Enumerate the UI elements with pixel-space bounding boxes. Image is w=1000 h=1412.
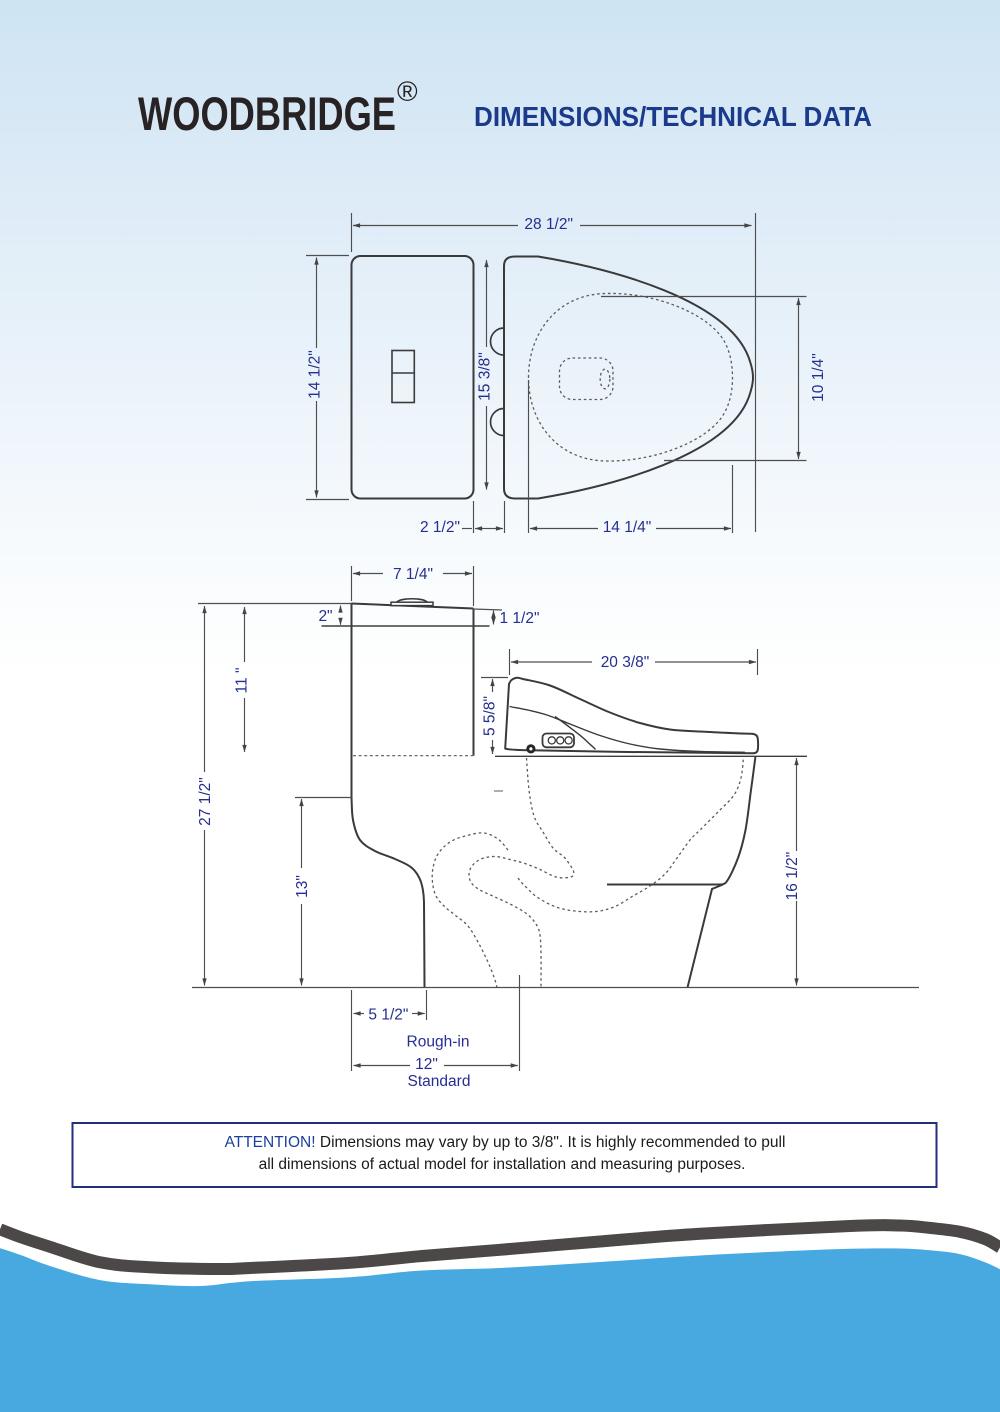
svg-text:15 3/8": 15 3/8" — [477, 352, 494, 401]
svg-text:28 1/2": 28 1/2" — [524, 216, 573, 233]
svg-text:2 1/2": 2 1/2" — [420, 519, 460, 536]
svg-text:13": 13" — [294, 875, 311, 898]
svg-text:27 1/2": 27 1/2" — [197, 777, 214, 826]
svg-text:5 1/2": 5 1/2" — [368, 1007, 408, 1024]
svg-text:14 1/2": 14 1/2" — [307, 350, 324, 399]
svg-text:WOODBRIDGE: WOODBRIDGE — [138, 87, 396, 140]
svg-text:Rough-in: Rough-in — [407, 1034, 470, 1051]
svg-text:16 1/2": 16 1/2" — [784, 852, 801, 901]
svg-text:12": 12" — [415, 1056, 438, 1073]
svg-text:7 1/4": 7 1/4" — [393, 566, 433, 583]
svg-text:all dimensions of actual model: all dimensions of actual model for insta… — [259, 1156, 746, 1173]
svg-text:5 5/8": 5 5/8" — [482, 696, 499, 736]
svg-text:11 ": 11 " — [234, 668, 251, 694]
svg-text:DIMENSIONS/TECHNICAL DATA: DIMENSIONS/TECHNICAL DATA — [474, 101, 872, 132]
svg-text:®: ® — [397, 76, 418, 107]
svg-text:1 1/2": 1 1/2" — [500, 610, 540, 627]
svg-text:Standard: Standard — [408, 1073, 471, 1090]
svg-text:ATTENTION! Dimensions may vary: ATTENTION! Dimensions may vary by up to … — [225, 1134, 786, 1151]
svg-text:2": 2" — [318, 608, 332, 625]
svg-text:20 3/8": 20 3/8" — [601, 654, 650, 671]
svg-text:14 1/4": 14 1/4" — [603, 519, 652, 536]
svg-text:10 1/4": 10 1/4" — [810, 353, 827, 402]
